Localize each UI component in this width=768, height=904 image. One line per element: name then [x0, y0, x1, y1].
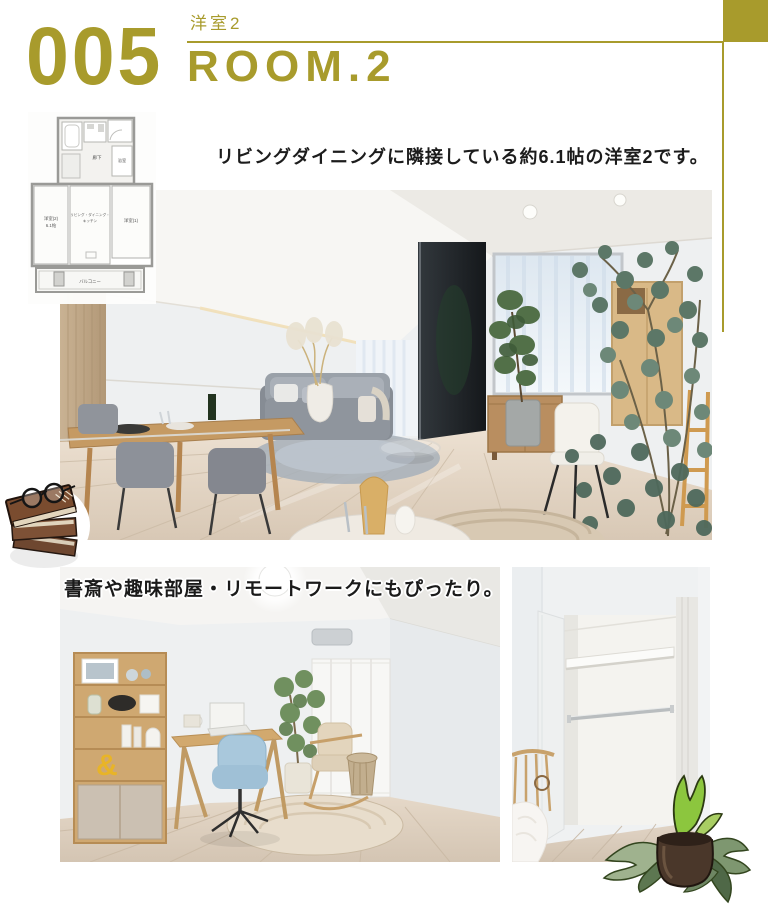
svg-text:リビング・ダイニング・: リビング・ダイニング・: [70, 212, 110, 217]
svg-text:洋室(1): 洋室(1): [124, 217, 139, 224]
room2-listing-page: 005 洋室2 ROOM.2: [0, 0, 768, 904]
svg-text:浴室: 浴室: [118, 157, 126, 164]
living-dining-photo: [60, 190, 712, 540]
room-label-english: ROOM.2: [187, 45, 397, 89]
main-caption: リビングダイニングに隣接している約6.1帖の洋室2です。: [205, 138, 746, 177]
section-number: 005: [26, 16, 163, 98]
books-glasses-illustration: [2, 458, 94, 572]
svg-text:洋室(2): 洋室(2): [44, 215, 59, 222]
staghorn-fern-illustration: [600, 760, 752, 904]
svg-text:キッチン: キッチン: [83, 218, 98, 223]
room-label-japanese: 洋室2: [190, 9, 242, 34]
vertical-accent-rule: [722, 42, 724, 332]
svg-text:6.1帖: 6.1帖: [46, 222, 57, 229]
secondary-caption: 書斎や趣味部屋・リモートワークにもぴったり。: [64, 574, 504, 601]
floor-plan-image: 廊下 浴室 洋室(2) 6.1帖 リビング・ダイニング・ キッチン 洋室(1) …: [28, 112, 156, 304]
corner-accent-square: [723, 0, 768, 42]
svg-text:廊下: 廊下: [93, 154, 102, 161]
svg-text:バルコニー: バルコニー: [79, 279, 101, 284]
svg-text:&: &: [96, 749, 118, 782]
study-room-photo: &: [60, 567, 500, 862]
